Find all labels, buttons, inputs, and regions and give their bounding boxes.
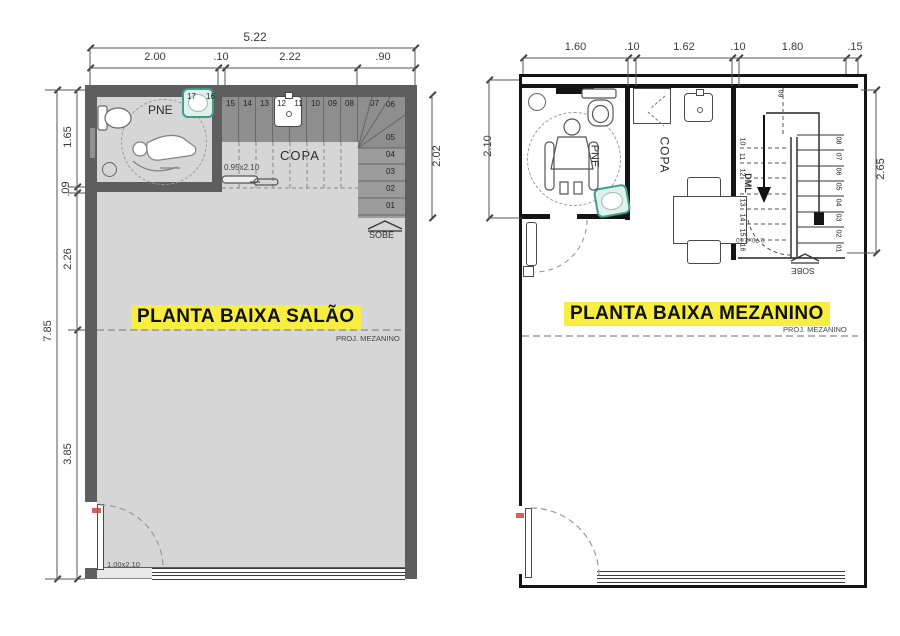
mez-copa-label: COPA	[658, 136, 672, 173]
tread-10: 10	[307, 99, 324, 108]
tread-17: 17	[183, 92, 200, 101]
mez-stair-newel	[814, 212, 824, 225]
tread-05: 05	[382, 133, 399, 142]
salao-pne-label: PNE	[148, 103, 173, 117]
mez-title: PLANTA BAIXA MEZANINO	[564, 302, 830, 326]
tread-09: 09	[324, 99, 341, 108]
mez-main-03: 03	[834, 214, 841, 222]
mez-main-07: 07	[834, 153, 841, 161]
faucet-icon	[696, 89, 704, 96]
salao-floor-drain	[102, 162, 117, 177]
mez-proj-mezanino-label: PROJ. MEZANINO	[783, 325, 847, 334]
salao-wall-top	[85, 85, 417, 97]
sink-bowl	[600, 190, 625, 212]
mez-dim-w5: .15	[840, 41, 870, 53]
faucet-icon	[285, 92, 293, 99]
salao-pne-door-size: 0.95x2.10	[224, 163, 259, 172]
mez-main-04: 04	[834, 199, 841, 207]
salao-dim-w1: .10	[206, 51, 236, 63]
mez-copa-counter	[633, 88, 671, 124]
tread-06: 06	[382, 100, 399, 109]
mez-stair-door-size: 0.70x2.10	[736, 236, 765, 243]
salao-dim-w3: .90	[368, 51, 398, 63]
mez-main-06: 06	[834, 168, 841, 176]
mez-pne-circle	[528, 93, 546, 111]
mez-copa-sink	[684, 93, 713, 122]
salao-dim-total-width: 5.22	[200, 30, 310, 44]
tread-13: 13	[256, 99, 273, 108]
plan-salao: 5.22 2.00 .10 2.22 .90 7.85 1.65 .09 2.2…	[0, 0, 450, 636]
mez-left-wall-door-leaf	[526, 222, 537, 266]
drain-dot	[286, 111, 292, 117]
mez-entry-door-leaf	[525, 508, 532, 578]
mez-dim-left: 2.10	[482, 126, 494, 166]
mez-dim-w2: 1.62	[636, 41, 732, 53]
salao-wall-right	[405, 85, 417, 579]
mez-main-05: 05	[834, 183, 841, 191]
salao-storefront-window	[152, 568, 405, 580]
tread-03: 03	[382, 167, 399, 176]
salao-title: PLANTA BAIXA SALÃO	[131, 305, 361, 329]
mez-pne-label: PNE	[588, 145, 600, 168]
mez-under-16: 16	[738, 244, 745, 252]
mez-pne-sink	[593, 183, 632, 218]
mez-storefront-window	[597, 571, 845, 583]
mez-tread-09: 09	[776, 90, 783, 98]
mez-door-hinge-mark	[516, 513, 524, 518]
salao-dim-total-height: 7.85	[42, 311, 54, 351]
mez-under-13: 13	[738, 199, 745, 207]
mez-pne-wall-bottom-a	[522, 214, 550, 219]
salao-dim-stair-height: 2.02	[431, 136, 443, 176]
tread-01: 01	[382, 201, 399, 210]
salao-sobe-label: SOBE	[369, 230, 394, 240]
mez-under-12: 12	[738, 169, 745, 177]
mez-under-10: 10	[738, 138, 745, 146]
salao-copa-label: COPA	[280, 148, 320, 163]
mez-dim-w4: 1.80	[739, 41, 846, 53]
tread-08: 08	[341, 99, 358, 108]
salao-dim-h1: .09	[60, 174, 72, 204]
mez-dim-right: 2.65	[875, 149, 887, 189]
floor-plan-sheet: 5.22 2.00 .10 2.22 .90 7.85 1.65 .09 2.2…	[0, 0, 900, 636]
plan-mezanino: 1.60 .10 1.62 .10 1.80 .15 2.10 2.65 PNE…	[450, 0, 900, 636]
mez-main-08: 08	[834, 137, 841, 145]
mez-left-wall-cabinet	[523, 266, 534, 277]
tread-02: 02	[382, 184, 399, 193]
tread-16: 16	[202, 92, 219, 101]
tread-15: 15	[222, 99, 239, 108]
mez-under-14: 14	[738, 214, 745, 222]
salao-door-landing	[97, 568, 152, 579]
salao-proj-mezanino-label: PROJ. MEZANINO	[336, 334, 400, 343]
mez-main-02: 02	[834, 230, 841, 238]
mez-dim-w0: 1.60	[523, 41, 628, 53]
drain-dot	[697, 107, 703, 113]
mez-sobe-label: SOBE	[791, 266, 815, 276]
salao-dim-w2: 2.22	[235, 51, 345, 63]
mez-pne-shelf	[556, 86, 594, 94]
tread-14: 14	[239, 99, 256, 108]
salao-dim-h0: 1.65	[62, 117, 74, 157]
mez-copa-chair-bottom	[687, 240, 721, 264]
salao-dim-h3: 3.85	[62, 434, 74, 474]
salao-grab-bar	[90, 128, 95, 158]
salao-dim-h2: 2.26	[62, 239, 74, 279]
tread-07: 07	[366, 99, 383, 108]
salao-entry-door-size: 1.00x2.10	[107, 560, 140, 569]
salao-dim-w0: 2.00	[100, 51, 210, 63]
tread-12: 12	[273, 99, 290, 108]
mez-main-01: 01	[834, 245, 841, 253]
tread-11: 11	[290, 99, 307, 108]
mez-under-11: 11	[738, 153, 745, 160]
salao-door-hinge-mark	[92, 508, 101, 513]
salao-entry-door-leaf	[97, 504, 104, 570]
tread-04: 04	[382, 150, 399, 159]
